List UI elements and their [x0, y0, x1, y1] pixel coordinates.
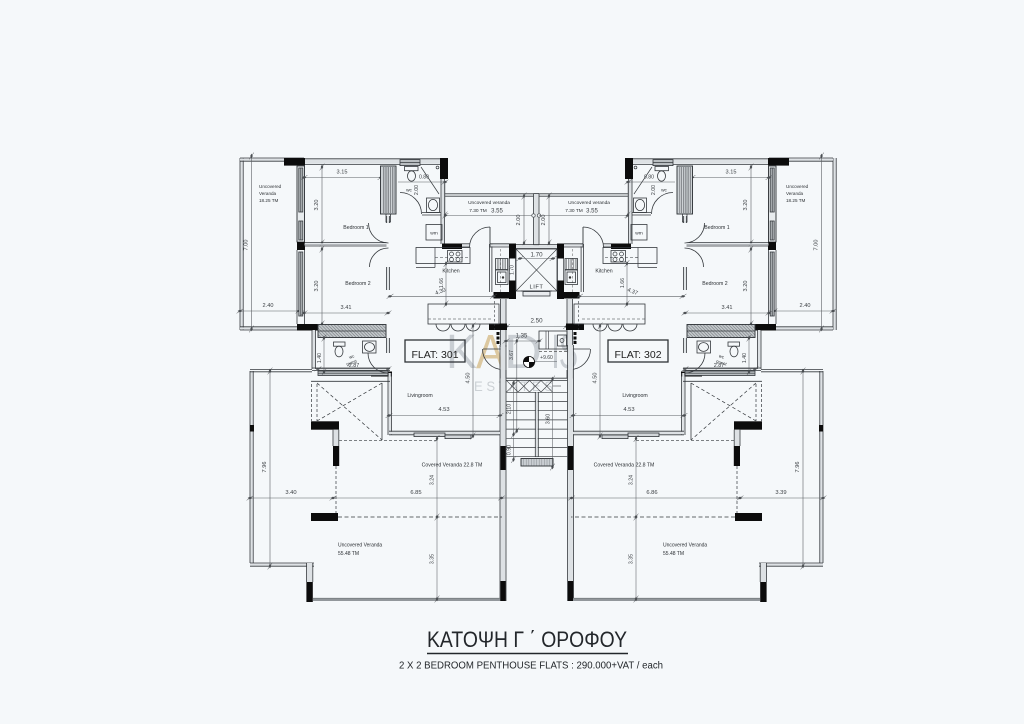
svg-text:ΚΑΤΟΨΗ Γ ΄ ΟΡΟΦΟΥ: ΚΑΤΟΨΗ Γ ΄ ΟΡΟΦΟΥ — [427, 627, 627, 652]
svg-text:3.15: 3.15 — [726, 170, 737, 176]
svg-text:Covered Veranda 22.8 TM: Covered Veranda 22.8 TM — [422, 463, 483, 469]
svg-text:6.85: 6.85 — [410, 490, 421, 496]
svg-text:3.40: 3.40 — [285, 490, 296, 496]
svg-text:7.96: 7.96 — [262, 462, 268, 473]
svg-text:2.00: 2.00 — [414, 185, 420, 195]
svg-text:55.48 TM: 55.48 TM — [338, 551, 359, 557]
svg-text:3.55: 3.55 — [586, 209, 598, 215]
svg-text:Bedroom 1: Bedroom 1 — [704, 225, 729, 231]
svg-text:Bedroom 2: Bedroom 2 — [702, 281, 727, 287]
svg-text:Livingroom: Livingroom — [622, 393, 647, 399]
svg-text:7.30 TM: 7.30 TM — [565, 208, 583, 214]
svg-text:2.87: 2.87 — [349, 363, 360, 369]
svg-text:Uncovered: Uncovered — [259, 184, 282, 189]
svg-text:3.20: 3.20 — [743, 281, 749, 292]
svg-text:18.25 TM: 18.25 TM — [786, 198, 805, 203]
svg-text:2 X 2 BEDROOM PENTHOUSE FLATS: 2 X 2 BEDROOM PENTHOUSE FLATS : 290.000+… — [399, 661, 663, 672]
svg-text:2.00: 2.00 — [516, 215, 522, 226]
svg-text:1.40: 1.40 — [317, 353, 323, 363]
svg-text:3.20: 3.20 — [314, 281, 320, 292]
svg-text:0.80: 0.80 — [644, 175, 654, 181]
svg-text:Uncovered veranda: Uncovered veranda — [568, 200, 610, 206]
svg-text:wc: wc — [661, 189, 667, 194]
svg-text:Uncovered: Uncovered — [786, 184, 809, 189]
svg-text:Kitchen: Kitchen — [442, 269, 459, 275]
svg-text:Veranda: Veranda — [259, 191, 277, 196]
svg-text:7.00: 7.00 — [814, 240, 820, 251]
svg-text:Bedroom 2: Bedroom 2 — [345, 281, 370, 287]
svg-text:2.00: 2.00 — [651, 185, 657, 195]
svg-text:3.20: 3.20 — [743, 200, 749, 211]
svg-text:Covered Veranda 22.8 TM: Covered Veranda 22.8 TM — [594, 463, 655, 469]
svg-text:55.48 TM: 55.48 TM — [663, 551, 684, 557]
svg-text:3.39: 3.39 — [775, 490, 786, 496]
svg-text:2.00: 2.00 — [541, 215, 547, 226]
svg-text:3.67: 3.67 — [509, 350, 515, 360]
svg-text:wm: wm — [430, 232, 437, 237]
svg-text:1.40: 1.40 — [742, 353, 748, 363]
svg-text:4.50: 4.50 — [466, 373, 472, 384]
svg-text:Livingroom: Livingroom — [407, 393, 432, 399]
svg-text:3.55: 3.55 — [491, 209, 503, 215]
svg-text:3.41: 3.41 — [722, 305, 733, 311]
svg-text:1.66: 1.66 — [620, 278, 626, 288]
svg-text:Kitchen: Kitchen — [595, 269, 612, 275]
svg-text:LIFT: LIFT — [530, 285, 544, 291]
svg-text:Uncovered Veranda: Uncovered Veranda — [338, 543, 382, 549]
svg-text:4.53: 4.53 — [438, 407, 449, 413]
svg-text:2.50: 2.50 — [530, 318, 543, 325]
svg-text:Veranda: Veranda — [786, 191, 804, 196]
svg-text:wm: wm — [635, 232, 642, 237]
svg-text:2.87: 2.87 — [714, 363, 725, 369]
svg-text:3.35: 3.35 — [430, 554, 436, 564]
svg-text:1.70: 1.70 — [530, 252, 543, 259]
svg-text:3.20: 3.20 — [314, 200, 320, 211]
svg-text:wc: wc — [406, 189, 412, 194]
svg-text:1.70: 1.70 — [510, 265, 516, 275]
svg-text:3.24: 3.24 — [430, 475, 436, 485]
svg-text:6.86: 6.86 — [646, 490, 657, 496]
svg-text:0.90: 0.90 — [507, 445, 513, 456]
svg-text:4.50: 4.50 — [593, 373, 599, 384]
svg-text:2.40: 2.40 — [800, 303, 811, 309]
svg-text:3.35: 3.35 — [629, 554, 635, 564]
svg-text:4.53: 4.53 — [623, 407, 634, 413]
svg-text:18.25 TM: 18.25 TM — [259, 198, 278, 203]
svg-text:FLAT: 301: FLAT: 301 — [411, 349, 458, 361]
svg-text:3.24: 3.24 — [629, 475, 635, 485]
svg-text:1.35: 1.35 — [516, 334, 528, 340]
svg-text:7.00: 7.00 — [244, 240, 250, 251]
svg-text:7.96: 7.96 — [795, 462, 801, 473]
svg-text:2.10: 2.10 — [507, 404, 513, 415]
svg-text:3.15: 3.15 — [337, 170, 348, 176]
svg-text:Uncovered Veranda: Uncovered Veranda — [663, 543, 707, 549]
svg-text:+9.60: +9.60 — [540, 355, 553, 361]
svg-text:2.40: 2.40 — [263, 303, 274, 309]
svg-text:3.60: 3.60 — [546, 414, 552, 425]
svg-text:FLAT: 302: FLAT: 302 — [614, 349, 661, 361]
svg-text:Uncovered veranda: Uncovered veranda — [468, 200, 510, 206]
svg-text:7.30 TM: 7.30 TM — [469, 208, 487, 214]
svg-text:Bedroom 1: Bedroom 1 — [343, 225, 368, 231]
svg-text:0.80: 0.80 — [419, 175, 429, 181]
svg-text:3.41: 3.41 — [341, 305, 352, 311]
